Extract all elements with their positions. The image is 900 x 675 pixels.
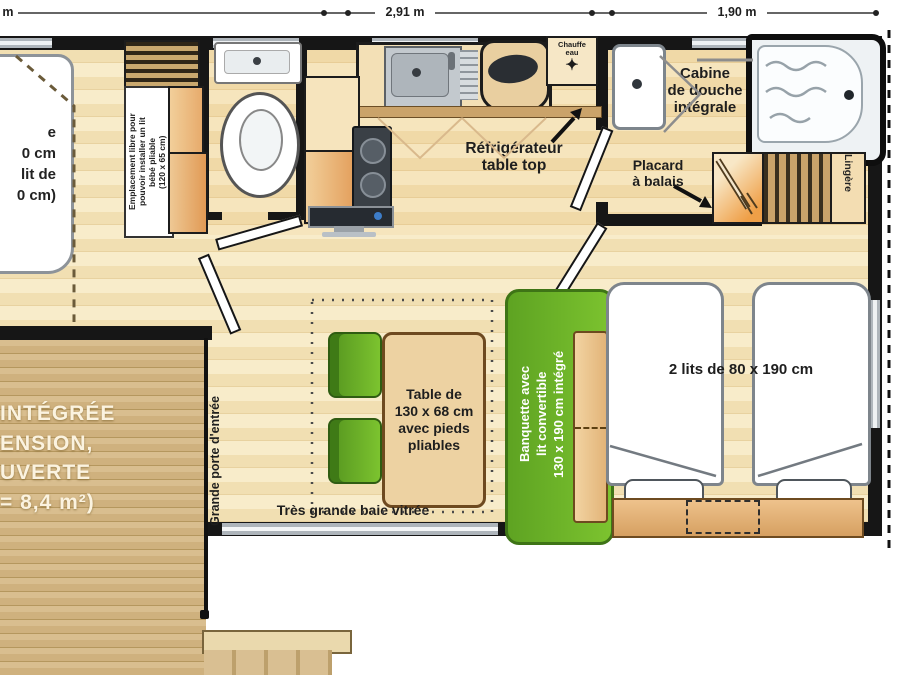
dim-left: 5 m [0,5,18,19]
dim-mid: 2,91 m [375,5,435,19]
floor-plan: INTÉGRÉE ENSION, UVERTE = 8,4 m²) e 0 cm… [0,0,900,675]
plan-annotations [0,0,900,675]
dim-right: 1,90 m [707,5,767,19]
